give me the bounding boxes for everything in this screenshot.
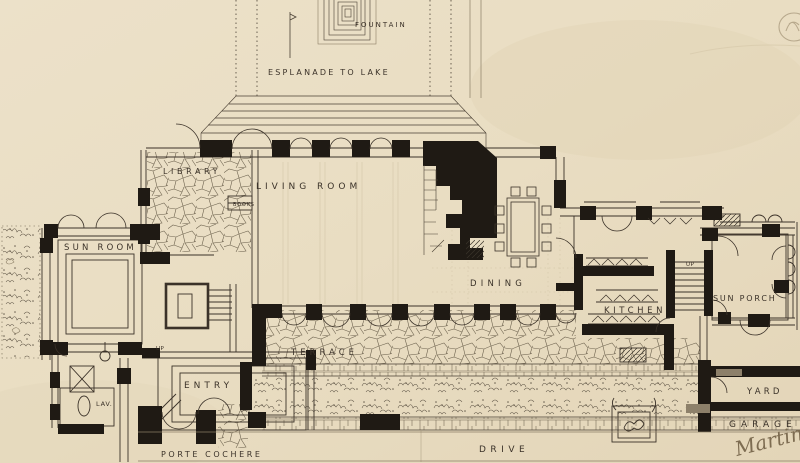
label-dining: DINING [470,279,526,289]
label-drive: DRIVE [479,445,529,455]
label-yard: YARD [746,387,783,397]
label-living-room: LIVING ROOM [256,182,361,192]
label-sun-room: SUN ROOM [64,243,137,253]
label-library: LIBRARY [163,167,221,176]
label-terrace: TERRACE [290,348,358,358]
label-fountain: FOUNTAIN [355,21,407,29]
label-up-entry: UP [156,346,165,352]
label-porte-cochere: PORTE COCHERE [161,450,263,459]
label-up-kitchen: UP [686,262,695,268]
label-entry: ENTRY [184,381,233,391]
plan-svg: FOUNTAIN ESPLANADE TO LAKE LIBRARY BOOKS… [0,0,800,463]
label-kitchen: KITCHEN [604,306,666,316]
floor-plan-drawing: FOUNTAIN ESPLANADE TO LAKE LIBRARY BOOKS… [0,0,800,463]
label-lav: LAV. [96,400,113,408]
label-books: BOOKS [233,202,255,208]
label-esplanade: ESPLANADE TO LAKE [268,68,390,77]
label-sun-porch: SUN PORCH [713,294,777,303]
